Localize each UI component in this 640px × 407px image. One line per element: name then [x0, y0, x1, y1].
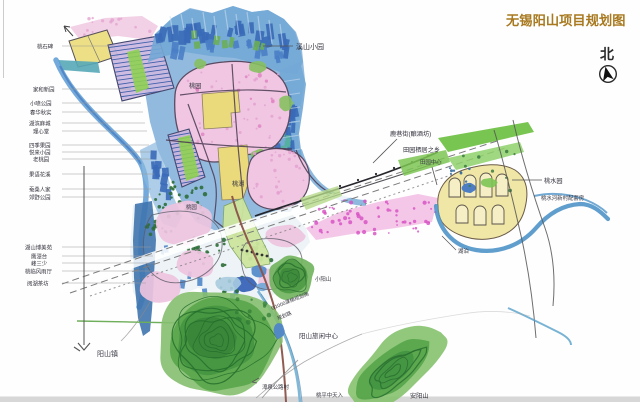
svg-text:鹿巷街(酿酒坊): 鹿巷街(酿酒坊) [390, 130, 431, 138]
svg-text:桃临风雨厅: 桃临风雨厅 [25, 268, 53, 276]
svg-text:桃水园: 桃水园 [544, 177, 563, 185]
svg-text:桃石碑: 桃石碑 [37, 43, 54, 51]
svg-text:家和新园: 家和新园 [33, 86, 55, 94]
svg-text:蚕桑人家: 蚕桑人家 [29, 186, 51, 194]
svg-text:桃园: 桃园 [189, 82, 201, 90]
svg-text:无锡阳山项目规划图: 无锡阳山项目规划图 [505, 12, 626, 28]
svg-text:果语花溪: 果语花溪 [29, 171, 51, 179]
svg-text:阅湖茶坊: 阅湖茶坊 [27, 280, 49, 288]
svg-text:桃水河新村配套房: 桃水河新村配套房 [541, 194, 584, 202]
svg-text:湖山博美苑: 湖山博美苑 [25, 244, 53, 252]
svg-text:峰三少: 峰三少 [31, 260, 48, 268]
svg-text:溪山小园: 溪山小园 [296, 42, 324, 51]
svg-text:漳泉公路村: 漳泉公路村 [262, 383, 290, 391]
svg-text:小喷公园: 小喷公园 [30, 100, 52, 108]
svg-text:郊野公园: 郊野公园 [29, 194, 51, 202]
svg-text:田园中心: 田园中心 [420, 158, 442, 166]
svg-text:桃园: 桃园 [186, 203, 197, 211]
svg-text:阳山旅闲中心: 阳山旅闲中心 [299, 331, 339, 340]
svg-text:小阳山: 小阳山 [315, 275, 331, 283]
svg-text:北: 北 [600, 46, 614, 62]
svg-text:湖泊: 湖泊 [458, 247, 469, 255]
svg-text:老桃园: 老桃园 [33, 156, 49, 164]
svg-text:四季果园: 四季果园 [29, 142, 51, 150]
svg-text:春华秋实: 春华秋实 [30, 109, 52, 117]
svg-text:悦来小园: 悦来小园 [29, 149, 51, 157]
svg-text:鹰潭台: 鹰潭台 [31, 253, 47, 261]
svg-text:田园栖居之乡: 田园栖居之乡 [403, 146, 440, 154]
svg-text:阳山镇: 阳山镇 [97, 349, 118, 358]
svg-text:理心堂: 理心堂 [33, 128, 50, 136]
svg-text:桃平中天入: 桃平中天入 [316, 391, 344, 399]
svg-text:安阳山: 安阳山 [410, 392, 429, 400]
svg-text:湖滨麻城: 湖滨麻城 [29, 120, 51, 128]
